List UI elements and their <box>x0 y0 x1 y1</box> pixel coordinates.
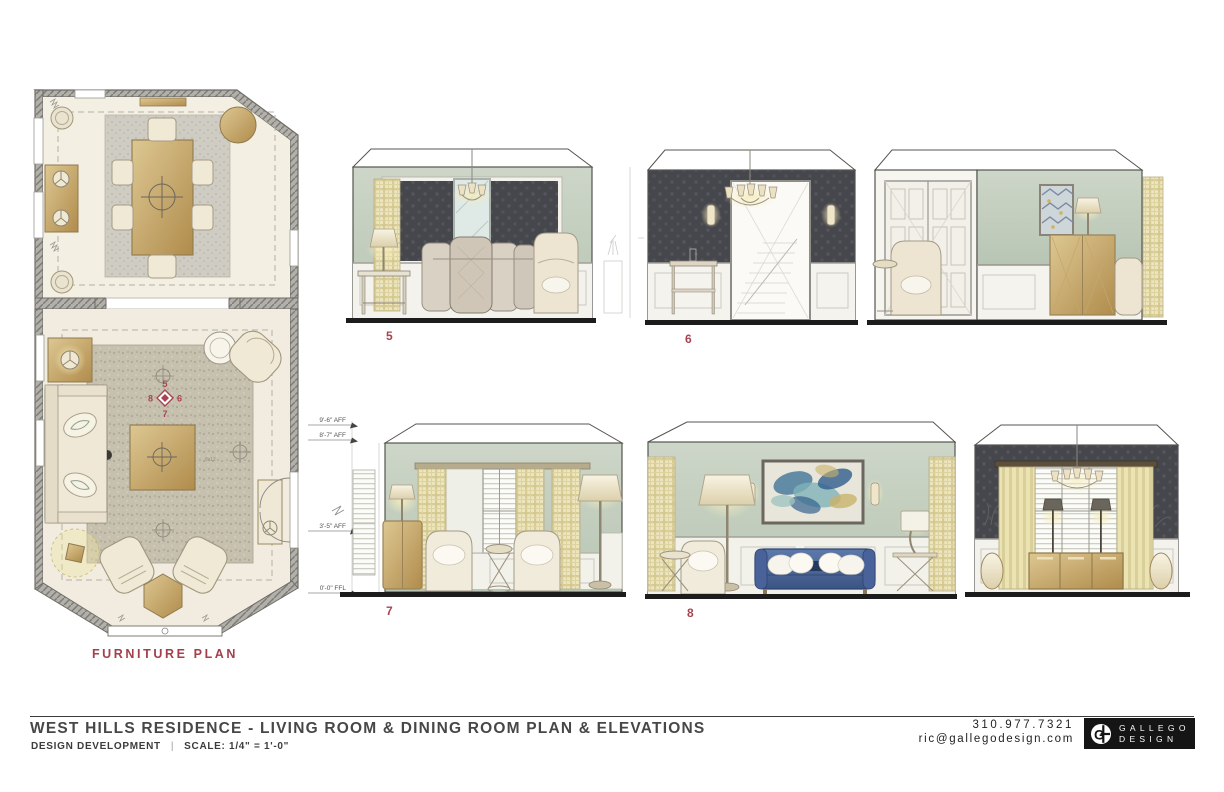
gallego-design-logo: G GALLEGO DESIGN <box>1084 718 1195 749</box>
cabinet-and-lamp <box>383 485 422 589</box>
dining-buffet <box>140 98 186 106</box>
dining-window <box>34 192 43 238</box>
elevation-5-label: 5 <box>386 329 393 343</box>
coffee-table <box>130 425 195 490</box>
furniture-plan-drawing: 8x12 <box>22 80 314 642</box>
blue-sofa <box>755 549 875 595</box>
ceiling <box>648 150 855 170</box>
console-lamp <box>263 521 277 535</box>
dining-room-plan <box>34 90 298 335</box>
table-lamp <box>370 229 398 247</box>
floor-line <box>340 592 626 597</box>
elevation-8-drawing: 8 <box>645 413 1195 620</box>
dining-chairs-elevation <box>422 237 536 313</box>
living-room-plan: 8x12 <box>35 309 298 636</box>
cornice <box>995 461 1157 467</box>
furniture-plan-label: FURNITURE PLAN <box>58 647 272 661</box>
height-annotations: 9'-6" AFF 8'-7" AFF 3'-5" AFF 0'-0" FFL <box>308 417 358 597</box>
floor-line <box>645 594 957 599</box>
tan-cabinet <box>1050 235 1115 315</box>
corner-wainscot <box>601 533 622 589</box>
drapery-panel <box>1143 177 1163 317</box>
title-rule <box>30 716 1194 717</box>
elevation-8-label: 8 <box>687 606 694 620</box>
logo-wordmark: GALLEGO DESIGN <box>1119 723 1190 745</box>
floor-line <box>965 592 1190 597</box>
design-sheet: { "palette": { "wall_sage": "#c5cfc1", "… <box>0 0 1224 792</box>
height-note: 0'-0" FFL <box>320 585 347 592</box>
elevation-6-label: 6 <box>685 332 692 346</box>
right-chair-edge <box>1115 258 1142 315</box>
marker-number-bottom: 7 <box>162 409 167 419</box>
abstract-painting <box>763 461 863 523</box>
scale-label: SCALE: 1/4" = 1'-0" <box>184 741 289 752</box>
height-note: 3'-5" AFF <box>319 523 346 530</box>
credenza <box>1029 553 1123 589</box>
gallego-logo-icon: G <box>1090 723 1112 745</box>
logo-line-2: DESIGN <box>1119 734 1190 745</box>
contact-block: 310.977.7321 ric@gallegodesign.com <box>919 719 1074 745</box>
table-lamp <box>61 351 79 369</box>
herringbone-art <box>1040 185 1074 235</box>
wing-chair <box>891 241 941 315</box>
living-window <box>36 335 44 381</box>
email-address: ric@gallegodesign.com <box>919 733 1074 745</box>
dining-window <box>290 230 298 266</box>
phone-number: 310.977.7321 <box>919 719 1074 731</box>
rug-size-note: 8x12 <box>205 457 216 463</box>
logo-line-1: GALLEGO <box>1119 723 1190 734</box>
dining-window <box>75 90 105 98</box>
ceiling <box>875 150 1142 170</box>
height-note: 9'-6" AFF <box>319 417 346 424</box>
floor-line <box>645 320 858 325</box>
adjacent-room-sketch <box>604 167 644 318</box>
marker-number-left: 8 <box>148 394 153 404</box>
bay-window <box>108 626 222 636</box>
marker-number-top: 5 <box>162 379 167 389</box>
elevation-5-drawing: 5 <box>338 143 644 348</box>
dining-window <box>34 118 43 164</box>
living-window <box>36 420 44 466</box>
phase-label: DESIGN DEVELOPMENT <box>31 741 161 752</box>
left-armchair <box>681 541 725 594</box>
marker-number-right: 6 <box>177 394 182 404</box>
height-note: 8'-7" AFF <box>319 432 346 439</box>
elevation-7-drawing: 9'-6" AFF 8'-7" AFF 3'-5" AFF 0'-0" FFL <box>300 413 645 620</box>
floor-line <box>867 320 1167 325</box>
section-shutter-sketch <box>332 443 379 592</box>
cornice <box>415 463 590 469</box>
sheet-title: WEST HILLS RESIDENCE - LIVING ROOM & DIN… <box>30 720 705 738</box>
door-opening <box>290 472 298 548</box>
drapery-panel <box>648 457 675 591</box>
ceiling <box>648 422 955 442</box>
elevation-6-drawing: 6 <box>645 143 1170 348</box>
wing-chair <box>534 233 578 313</box>
ceiling <box>385 424 622 443</box>
sofa-plan <box>45 385 112 523</box>
sheet-subtitle: DESIGN DEVELOPMENT|SCALE: 1/4" = 1'-0" <box>31 741 289 752</box>
elevation-7-label: 7 <box>386 604 393 618</box>
subtitle-divider: | <box>171 741 174 752</box>
floor-line <box>346 318 596 323</box>
